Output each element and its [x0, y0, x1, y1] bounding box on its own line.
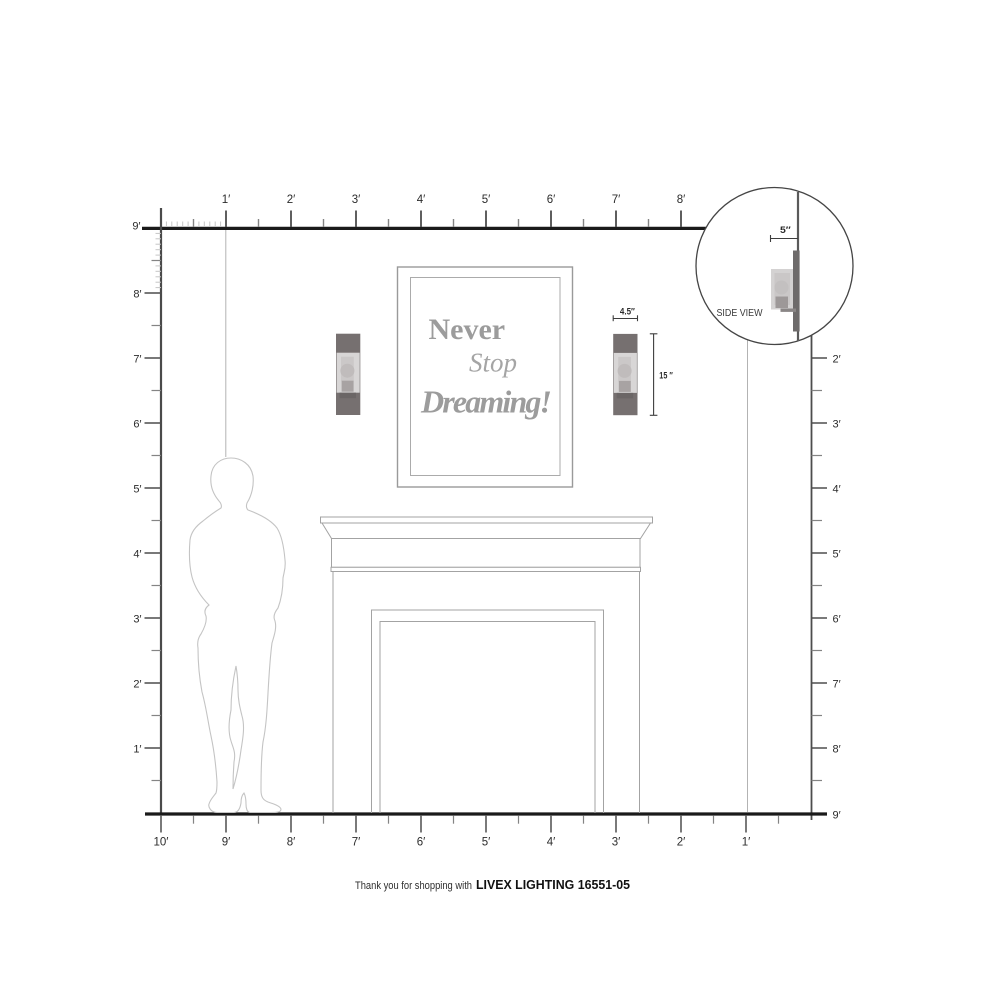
- svg-text:6′: 6′: [417, 837, 426, 849]
- svg-text:8′: 8′: [287, 837, 296, 849]
- svg-text:2′: 2′: [287, 194, 296, 206]
- svg-text:3′: 3′: [352, 194, 361, 206]
- svg-text:9′: 9′: [132, 221, 140, 233]
- svg-text:8′: 8′: [677, 194, 686, 206]
- svg-text:3′: 3′: [833, 418, 841, 430]
- svg-text:SIDE VIEW: SIDE VIEW: [717, 307, 763, 319]
- svg-text:1′: 1′: [222, 194, 231, 206]
- svg-text:2′: 2′: [133, 678, 141, 690]
- svg-text:2′: 2′: [677, 837, 686, 849]
- svg-text:5′: 5′: [833, 548, 841, 560]
- svg-text:5′: 5′: [482, 837, 491, 849]
- svg-text:Stop: Stop: [469, 348, 517, 378]
- svg-text:5″: 5″: [780, 225, 791, 236]
- svg-text:Never: Never: [428, 313, 505, 346]
- svg-text:2′: 2′: [833, 353, 841, 365]
- svg-text:1′: 1′: [742, 837, 751, 849]
- svg-text:4.5″: 4.5″: [620, 307, 635, 318]
- svg-text:5′: 5′: [133, 483, 141, 495]
- svg-text:7′: 7′: [352, 837, 361, 849]
- svg-text:6′: 6′: [547, 194, 556, 206]
- svg-text:7′: 7′: [833, 678, 841, 690]
- svg-text:9′: 9′: [833, 809, 841, 821]
- svg-text:7′: 7′: [612, 194, 621, 206]
- svg-text:Thank you for shopping with: Thank you for shopping with: [355, 880, 472, 892]
- svg-text:LIVEX LIGHTING 16551-05: LIVEX LIGHTING 16551-05: [476, 878, 630, 892]
- svg-text:9′: 9′: [222, 837, 231, 849]
- svg-text:4′: 4′: [547, 837, 556, 849]
- svg-text:4′: 4′: [833, 483, 841, 495]
- svg-text:8′: 8′: [833, 743, 841, 755]
- svg-text:3′: 3′: [133, 613, 141, 625]
- svg-text:4′: 4′: [133, 548, 141, 560]
- svg-text:6′: 6′: [133, 418, 141, 430]
- svg-text:3′: 3′: [612, 837, 621, 849]
- svg-text:5′: 5′: [482, 194, 491, 206]
- svg-text:6′: 6′: [833, 613, 841, 625]
- svg-text:10′: 10′: [154, 837, 169, 849]
- svg-text:4′: 4′: [417, 194, 426, 206]
- svg-text:Dreaming!: Dreaming!: [420, 384, 552, 420]
- svg-text:8′: 8′: [133, 288, 141, 300]
- svg-text:1′: 1′: [133, 743, 141, 755]
- svg-text:7′: 7′: [133, 353, 141, 365]
- svg-text:15 ″: 15 ″: [659, 370, 673, 381]
